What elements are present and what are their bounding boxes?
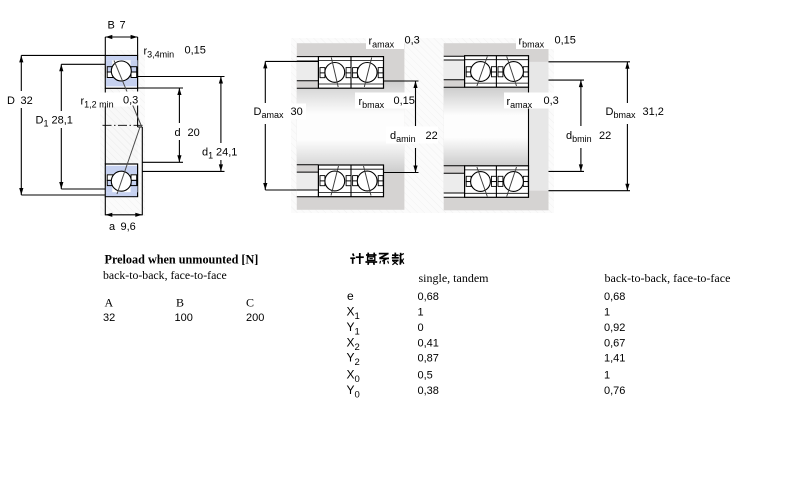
svg-text:30: 30 bbox=[291, 106, 303, 118]
svg-text:0,38: 0,38 bbox=[418, 385, 439, 397]
svg-text:0,3: 0,3 bbox=[544, 95, 559, 107]
svg-text:28,1: 28,1 bbox=[52, 115, 73, 127]
svg-text:0,67: 0,67 bbox=[604, 338, 625, 350]
svg-text:a: a bbox=[109, 221, 116, 233]
svg-text:0,68: 0,68 bbox=[418, 291, 439, 303]
svg-text:single, tandem: single, tandem bbox=[419, 271, 490, 285]
svg-text:0,15: 0,15 bbox=[185, 45, 206, 57]
svg-text:0,3: 0,3 bbox=[123, 95, 138, 107]
svg-text:32: 32 bbox=[103, 312, 115, 324]
svg-text:1: 1 bbox=[418, 307, 424, 319]
svg-text:back-to-back, face-to-face: back-to-back, face-to-face bbox=[103, 268, 227, 282]
svg-text:24,1: 24,1 bbox=[216, 147, 237, 159]
svg-text:7: 7 bbox=[120, 20, 126, 32]
svg-text:B: B bbox=[108, 20, 115, 32]
svg-text:20: 20 bbox=[188, 127, 200, 139]
svg-text:1: 1 bbox=[604, 307, 610, 319]
svg-text:d: d bbox=[175, 127, 181, 139]
svg-text:22: 22 bbox=[426, 130, 438, 142]
svg-text:32: 32 bbox=[21, 95, 33, 107]
svg-text:22: 22 bbox=[599, 130, 611, 142]
svg-text:0,15: 0,15 bbox=[555, 35, 576, 47]
svg-text:1,41: 1,41 bbox=[604, 353, 625, 365]
svg-text:0,41: 0,41 bbox=[418, 338, 439, 350]
svg-text:0,15: 0,15 bbox=[394, 95, 415, 107]
svg-text:200: 200 bbox=[246, 312, 264, 324]
svg-text:D: D bbox=[7, 95, 15, 107]
svg-text:9,6: 9,6 bbox=[121, 221, 136, 233]
svg-text:100: 100 bbox=[175, 312, 193, 324]
svg-text:A: A bbox=[105, 296, 114, 310]
svg-text:C: C bbox=[246, 296, 254, 310]
svg-text:0,3: 0,3 bbox=[405, 35, 420, 47]
svg-text:0,5: 0,5 bbox=[418, 370, 433, 382]
svg-text:0,92: 0,92 bbox=[604, 322, 625, 334]
svg-text:Preload when unmounted [N]: Preload when unmounted [N] bbox=[105, 253, 259, 267]
svg-text:B: B bbox=[176, 296, 184, 310]
svg-text:1: 1 bbox=[604, 370, 610, 382]
svg-text:31,2: 31,2 bbox=[643, 106, 664, 118]
svg-text:0: 0 bbox=[418, 322, 424, 334]
svg-text:0,87: 0,87 bbox=[418, 353, 439, 365]
svg-text:0,76: 0,76 bbox=[604, 385, 625, 397]
svg-text:e: e bbox=[347, 289, 354, 303]
svg-text:back-to-back, face-to-face: back-to-back, face-to-face bbox=[605, 271, 731, 285]
svg-text:0,68: 0,68 bbox=[604, 291, 625, 303]
